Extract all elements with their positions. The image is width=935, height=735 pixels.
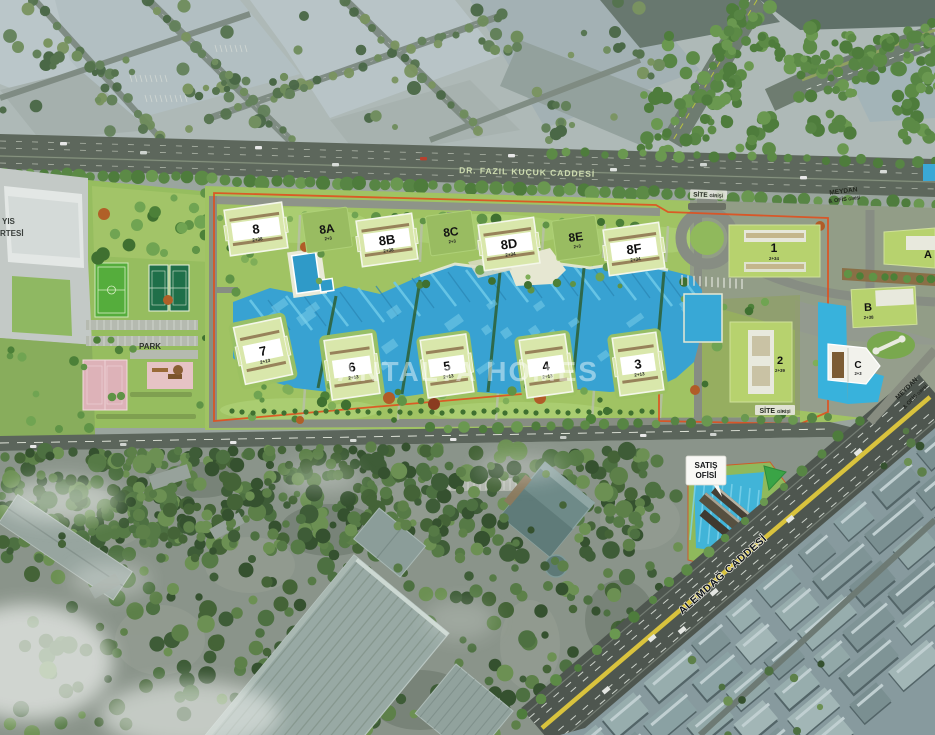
- svg-text:PARK: PARK: [139, 342, 161, 351]
- svg-text:8F: 8F: [625, 241, 642, 258]
- svg-text:2: 2: [777, 355, 783, 367]
- svg-text:2+39: 2+39: [775, 368, 785, 373]
- svg-text:YIS: YIS: [2, 217, 16, 226]
- svg-text:A: A: [924, 249, 932, 261]
- svg-text:1: 1: [771, 241, 778, 255]
- svg-text:8B: 8B: [378, 231, 397, 248]
- svg-text:SATIŞ: SATIŞ: [695, 461, 719, 470]
- svg-text:ANTALYA HOMES: ANTALYA HOMES: [337, 356, 599, 387]
- svg-text:8D: 8D: [500, 235, 519, 252]
- svg-text:SİTE GİRİŞİ: SİTE GİRİŞİ: [759, 407, 790, 415]
- svg-text:B: B: [864, 302, 873, 314]
- svg-text:C: C: [854, 360, 861, 371]
- svg-text:8C: 8C: [442, 224, 459, 240]
- svg-text:2+3: 2+3: [854, 371, 862, 376]
- svg-text:8A: 8A: [318, 221, 335, 237]
- svg-text:2+34: 2+34: [769, 256, 779, 261]
- svg-text:8E: 8E: [568, 229, 584, 245]
- svg-text:2+38: 2+38: [864, 315, 875, 321]
- svg-text:OFİSİ: OFİSİ: [696, 471, 717, 480]
- svg-text:RTESİ: RTESİ: [0, 229, 24, 238]
